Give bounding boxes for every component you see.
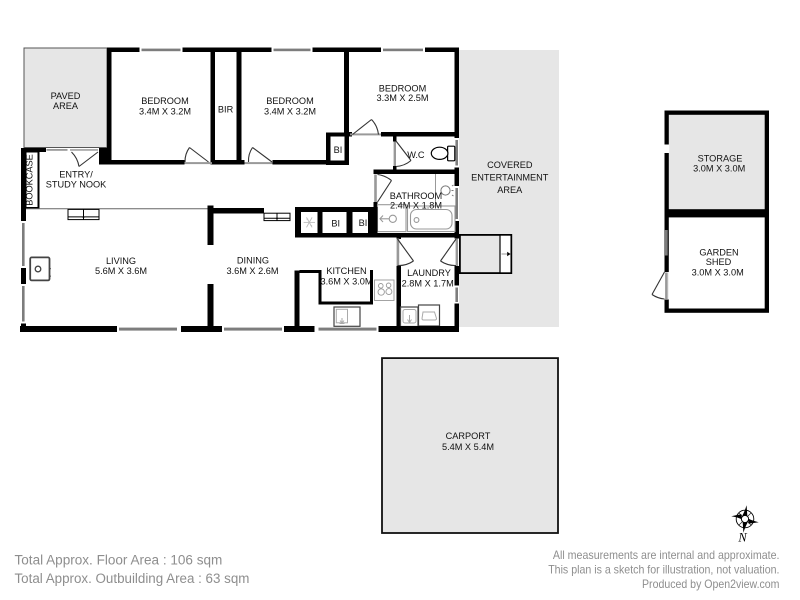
svg-text:BI: BI: [359, 218, 368, 228]
svg-text:W.C: W.C: [407, 150, 425, 160]
svg-text:CARPORT: CARPORT: [446, 431, 491, 441]
svg-text:5.4M X 5.4M: 5.4M X 5.4M: [442, 442, 494, 452]
svg-text:2.4M X 1.8M: 2.4M X 1.8M: [390, 200, 442, 210]
svg-text:All measurements are internal: All measurements are internal and approx…: [553, 549, 780, 562]
svg-text:BOOKCASE: BOOKCASE: [25, 154, 35, 206]
svg-text:LAUNDRY: LAUNDRY: [407, 268, 451, 278]
svg-text:2.8M X 1.7M: 2.8M X 1.7M: [402, 278, 454, 288]
svg-text:Total Approx. Outbuilding Area: Total Approx. Outbuilding Area : 63 sqm: [15, 571, 250, 586]
svg-text:N: N: [737, 531, 747, 545]
svg-text:GARDEN: GARDEN: [699, 247, 738, 257]
svg-text:5.6M X 3.6M: 5.6M X 3.6M: [95, 266, 147, 276]
svg-text:BI: BI: [331, 219, 340, 229]
svg-text:ENTRY/: ENTRY/: [59, 169, 93, 179]
svg-text:3.4M X 3.2M: 3.4M X 3.2M: [264, 106, 316, 116]
svg-text:3.6M X 3.0M: 3.6M X 3.0M: [320, 276, 372, 286]
svg-text:STUDY NOOK: STUDY NOOK: [46, 179, 107, 189]
svg-text:BI: BI: [334, 145, 343, 155]
svg-text:AREA: AREA: [53, 101, 79, 111]
svg-text:This plan is a sketch for illu: This plan is a sketch for illustration, …: [548, 564, 779, 577]
svg-text:KITCHEN: KITCHEN: [326, 266, 366, 276]
svg-text:AREA: AREA: [497, 185, 523, 195]
svg-text:3.4M X 3.2M: 3.4M X 3.2M: [139, 106, 191, 116]
svg-text:3.3M X 2.5M: 3.3M X 2.5M: [376, 93, 428, 103]
svg-text:BEDROOM: BEDROOM: [379, 83, 426, 93]
svg-text:ENTERTAINMENT: ENTERTAINMENT: [471, 172, 549, 182]
svg-text:COVERED: COVERED: [487, 160, 533, 170]
svg-text:3.0M X 3.0M: 3.0M X 3.0M: [692, 268, 744, 278]
svg-text:DINING: DINING: [237, 256, 269, 266]
svg-text:Total Approx. Floor Area : 106: Total Approx. Floor Area : 106 sqm: [15, 552, 223, 567]
svg-text:LIVING: LIVING: [106, 256, 136, 266]
svg-text:BIR: BIR: [218, 104, 234, 114]
svg-text:BEDROOM: BEDROOM: [266, 96, 313, 106]
svg-text:PAVED: PAVED: [51, 91, 81, 101]
svg-text:BEDROOM: BEDROOM: [141, 96, 188, 106]
svg-text:SHED: SHED: [706, 257, 732, 267]
svg-text:3.6M X 2.6M: 3.6M X 2.6M: [226, 266, 278, 276]
svg-text:3.0M X 3.0M: 3.0M X 3.0M: [693, 163, 745, 173]
svg-text:Produced by Open2view.com: Produced by Open2view.com: [642, 578, 780, 591]
svg-text:STORAGE: STORAGE: [698, 153, 743, 163]
